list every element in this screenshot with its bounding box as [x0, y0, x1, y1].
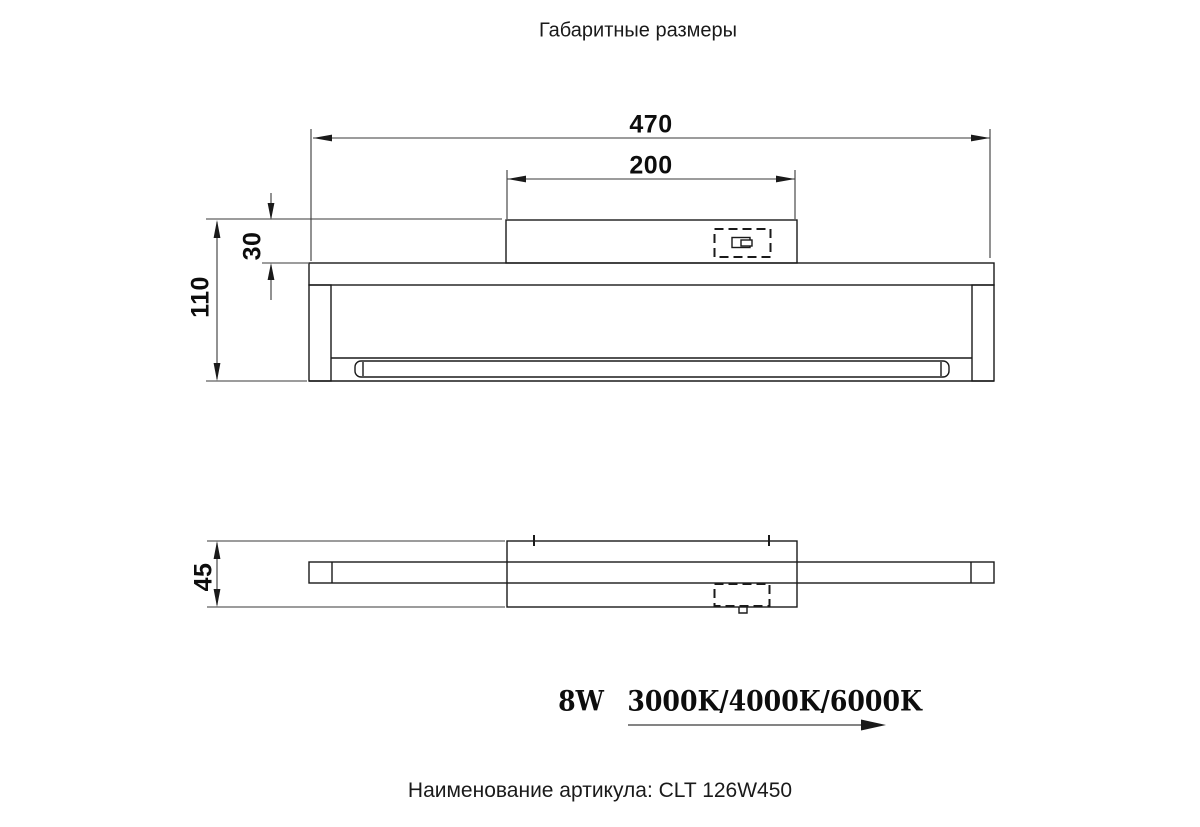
mounting-plate-top	[507, 541, 797, 607]
dimension-45	[207, 541, 505, 607]
connector-symbol	[732, 238, 752, 248]
top-view-drawing	[309, 535, 994, 613]
light-tube	[355, 361, 949, 377]
article-number: CLT 126W450	[659, 779, 792, 802]
page-title: Габаритные размеры	[539, 20, 737, 43]
dimension-470	[311, 129, 990, 261]
beam-front	[309, 263, 994, 285]
spec-arrow	[628, 720, 886, 731]
dim-label-200: 200	[629, 152, 672, 181]
article-caption: Наименование артикула: CLT 126W450	[408, 779, 792, 803]
spec-color-temperatures: 3000K/4000K/6000K	[627, 685, 922, 718]
spec-wattage: 8W	[558, 685, 604, 718]
article-caption-label: Наименование артикула:	[408, 779, 653, 802]
dim-label-110: 110	[187, 276, 216, 318]
dim-label-30: 30	[239, 232, 268, 261]
dim-label-470: 470	[629, 111, 672, 140]
driver-box-top	[715, 584, 770, 606]
front-view-drawing	[309, 220, 994, 381]
right-arm-front	[972, 285, 994, 381]
dim-label-45: 45	[190, 563, 219, 592]
beam-top	[309, 562, 994, 583]
left-arm-front	[309, 285, 331, 381]
front-view-dimensions	[206, 129, 990, 381]
cable-tab	[739, 607, 747, 613]
technical-drawing-page: Габаритные размеры 470 200 30 110 45 8W3…	[0, 0, 1200, 827]
spec-line: 8W3000K/4000K/6000K	[558, 685, 922, 718]
